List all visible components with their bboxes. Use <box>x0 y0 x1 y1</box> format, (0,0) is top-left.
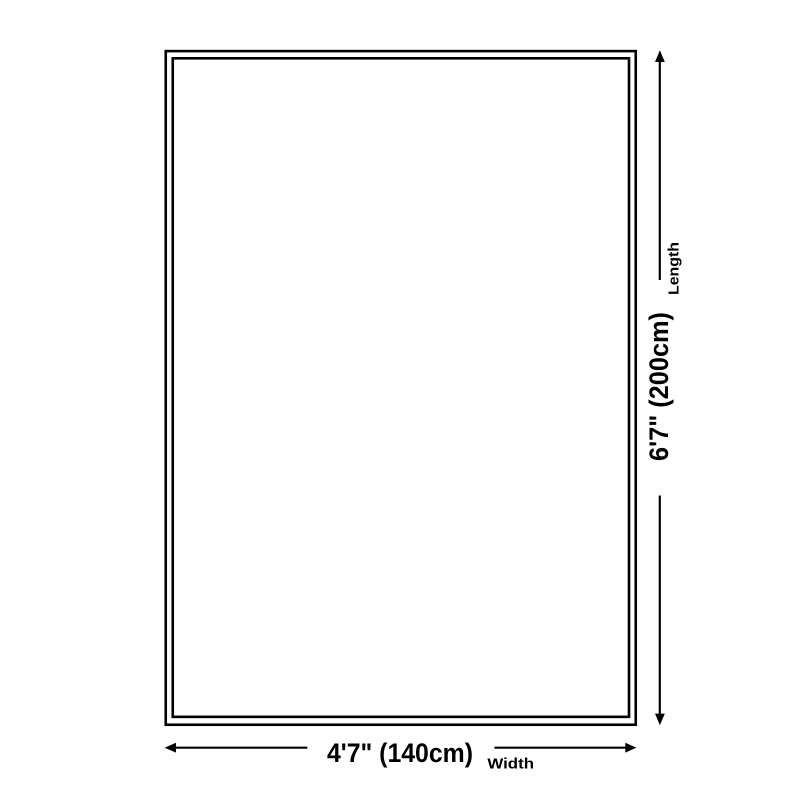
svg-text:6'7" (200cm): 6'7" (200cm) <box>644 312 674 461</box>
svg-text:Width: Width <box>487 757 534 773</box>
svg-text:4'7" (140cm): 4'7" (140cm) <box>327 738 473 768</box>
svg-text:Length: Length <box>666 242 682 295</box>
